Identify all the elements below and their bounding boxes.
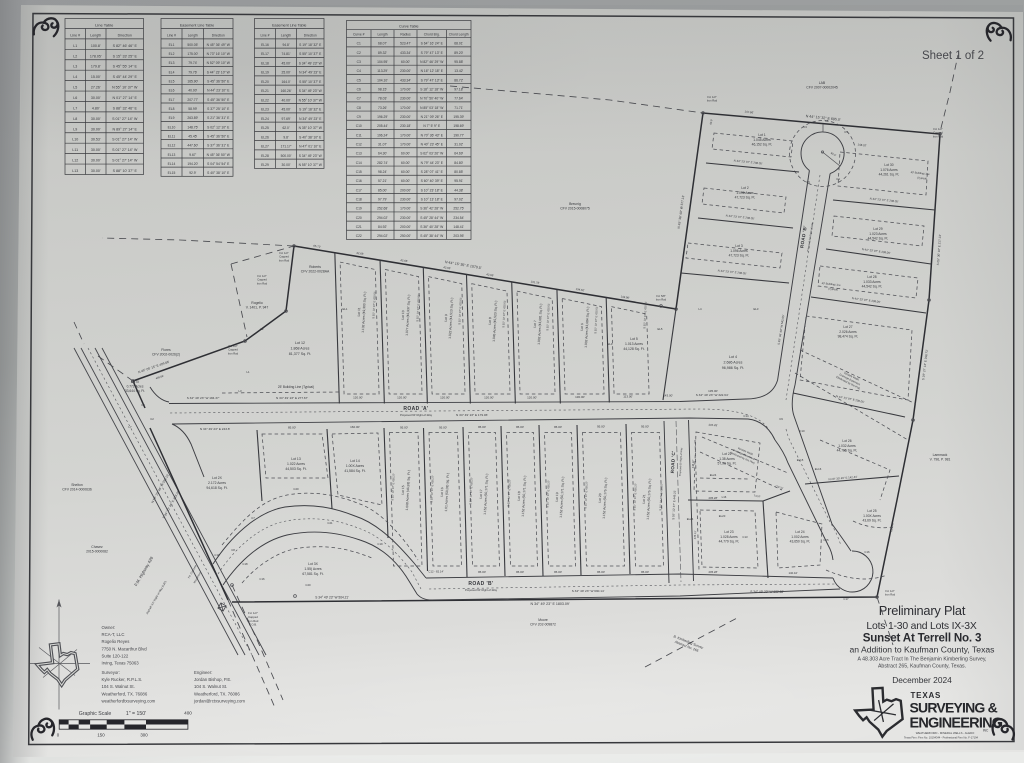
svg-text:13.42': 13.42' [454, 69, 463, 73]
svg-text:S 34° 49' 23" W: S 34° 49' 23" W [299, 61, 323, 65]
svg-text:S 79° 47' 13" E: S 79° 47' 13" E [421, 51, 444, 55]
svg-text:95.00': 95.00' [400, 426, 409, 430]
svg-text:N 21° 09' 26" E: N 21° 09' 26" E [421, 115, 444, 119]
svg-text:C6: C6 [806, 180, 810, 184]
svg-text:97.79': 97.79' [378, 198, 387, 202]
svg-text:EL4: EL4 [169, 70, 175, 74]
svg-text:EL2: EL2 [169, 52, 175, 56]
svg-text:L3: L3 [73, 65, 77, 69]
svg-text:113.29': 113.29' [377, 69, 388, 73]
svg-text:190.77': 190.77' [453, 133, 464, 137]
svg-text:30.00': 30.00' [91, 96, 101, 100]
svg-text:L5: L5 [826, 119, 829, 123]
svg-text:40.00': 40.00' [282, 98, 291, 102]
svg-text:EL12: EL12 [168, 144, 176, 148]
svg-text:S 40° 38' 10" E: S 40° 38' 10" E [207, 171, 230, 175]
svg-text:104.10': 104.10' [377, 78, 388, 82]
svg-text:S 45° 44' 29" E: S 45° 44' 29" E [113, 75, 138, 79]
svg-text:135.00': 135.00' [708, 389, 718, 393]
svg-text:170.00': 170.00' [400, 106, 411, 110]
svg-text:58.99': 58.99' [188, 107, 197, 111]
svg-text:L6: L6 [73, 96, 77, 100]
svg-text:Sheet 1 of 2: Sheet 1 of 2 [922, 50, 984, 62]
svg-text:27.26': 27.26' [91, 86, 101, 90]
svg-text:196.24': 196.24' [377, 133, 388, 137]
svg-text:EL15: EL15 [168, 171, 176, 175]
svg-text:84.80': 84.80' [454, 161, 463, 165]
svg-text:L1: L1 [246, 370, 250, 374]
svg-text:S 55° 10' 37" E: S 55° 10' 37" E [299, 52, 322, 56]
svg-text:30.00': 30.00' [91, 127, 101, 131]
svg-text:C15: C15 [823, 538, 829, 542]
svg-text:Fd. 1/2"Iron Rod: Fd. 1/2"Iron Rod [885, 589, 896, 597]
svg-text:Line Table: Line Table [95, 22, 114, 27]
svg-text:45.00': 45.00' [282, 108, 291, 112]
svg-text:C8: C8 [357, 106, 361, 110]
svg-text:S 01° 27' 14" W: S 01° 27' 14" W [112, 138, 138, 142]
svg-text:C12: C12 [356, 143, 362, 147]
svg-text:230.00': 230.00' [400, 115, 411, 119]
svg-text:198.69': 198.69' [453, 124, 464, 128]
svg-text:95.00': 95.00' [597, 570, 606, 574]
svg-text:S 36° 40' 28" W: S 36° 40' 28" W [420, 225, 444, 229]
svg-text:30.00': 30.00' [91, 169, 101, 173]
svg-text:L12: L12 [72, 159, 78, 163]
svg-text:N 16° 12' 18" E: N 16° 12' 18" E [421, 69, 444, 73]
svg-text:68.01': 68.01' [454, 42, 463, 46]
svg-text:Curve Table: Curve Table [399, 25, 419, 29]
svg-text:40.00': 40.00' [188, 89, 197, 93]
svg-text:L16: L16 [722, 495, 727, 499]
svg-text:C16: C16 [356, 179, 362, 183]
svg-text:30.00': 30.00' [91, 117, 101, 121]
svg-text:175.00': 175.00' [187, 52, 198, 56]
svg-text:9.8': 9.8' [283, 135, 289, 139]
svg-text:100.8': 100.8' [91, 44, 101, 48]
svg-text:Length: Length [281, 33, 291, 37]
svg-text:194.20': 194.20' [187, 162, 198, 166]
svg-text:148.75': 148.75' [187, 125, 198, 129]
svg-text:L2: L2 [260, 327, 264, 331]
svg-text:EL23: EL23 [261, 108, 269, 112]
svg-text:300: 300 [140, 733, 148, 738]
svg-text:an Addition to Kaufman County,: an Addition to Kaufman County, Texas [850, 645, 995, 655]
svg-text:95.00': 95.00' [478, 425, 487, 429]
svg-text:INC: INC [983, 729, 989, 733]
svg-text:EL24: EL24 [687, 517, 694, 521]
svg-text:L11: L11 [72, 148, 78, 152]
svg-text:143.00': 143.00' [663, 394, 673, 398]
svg-text:EL3: EL3 [169, 61, 175, 65]
svg-text:80.85': 80.85' [454, 170, 463, 174]
svg-text:C16: C16 [259, 577, 265, 581]
svg-text:95.91': 95.91' [454, 179, 463, 183]
svg-text:C18: C18 [356, 198, 362, 202]
svg-text:Lots 1-30 and Lots IX-3X: Lots 1-30 and Lots IX-3X [866, 621, 976, 632]
svg-text:N 45° 36' 49" W: N 45° 36' 49" W [207, 43, 231, 47]
svg-text:62.0': 62.0' [282, 126, 289, 130]
svg-text:C16: C16 [864, 550, 870, 554]
svg-text:Preliminary Plat: Preliminary Plat [879, 603, 966, 618]
svg-text:30.00': 30.00' [91, 159, 101, 163]
svg-text:31.02': 31.02' [454, 143, 463, 147]
svg-text:230.00': 230.00' [400, 198, 411, 202]
svg-text:S 01° 27' 14" W: S 01° 27' 14" W [112, 148, 138, 152]
svg-text:Chord Brg.: Chord Brg. [424, 33, 440, 37]
svg-text:L8: L8 [73, 117, 77, 121]
svg-text:Chord Length: Chord Length [449, 33, 469, 37]
svg-text:95.00': 95.00' [516, 425, 525, 429]
svg-text:97.18': 97.18' [454, 88, 463, 92]
svg-text:31.07': 31.07' [378, 143, 387, 147]
svg-text:L9: L9 [73, 127, 77, 131]
svg-text:December 2024: December 2024 [892, 675, 952, 685]
svg-text:97.69': 97.69' [282, 117, 291, 121]
svg-text:N 45° 36' 50" W: N 45° 36' 50" W [207, 153, 231, 157]
svg-text:S 88° 32' 46" E: S 88° 32' 46" E [113, 106, 138, 110]
svg-text:95.00': 95.00' [439, 425, 448, 429]
svg-text:95.00': 95.00' [641, 570, 650, 574]
svg-text:N 89° 27' 14" E: N 89° 27' 14" E [113, 127, 138, 131]
svg-text:89.32': 89.32' [378, 51, 387, 55]
svg-text:500.00': 500.00' [281, 154, 292, 158]
svg-text:EL15: EL15 [797, 458, 804, 462]
svg-text:170.00': 170.00' [400, 143, 411, 147]
svg-text:L4: L4 [698, 307, 702, 311]
svg-text:C13: C13 [356, 152, 362, 156]
svg-text:C4: C4 [836, 177, 840, 181]
svg-text:45.00': 45.00' [282, 61, 291, 65]
svg-text:N 70° 50' 40" W: N 70° 50' 40" W [420, 97, 444, 101]
svg-text:EL16: EL16 [815, 467, 822, 471]
svg-text:S 19° 18' 32" E: S 19° 18' 32" E [299, 108, 322, 112]
svg-text:EL19: EL19 [261, 71, 269, 75]
svg-text:171.17': 171.17' [281, 145, 292, 149]
svg-text:N 34° 49' 23" E: N 34° 49' 23" E [299, 71, 322, 75]
svg-text:S 15° 33' 25" E: S 15° 33' 25" E [113, 54, 138, 58]
svg-text:433.34': 433.34' [400, 78, 411, 82]
svg-text:N 01° 27' 14" E: N 01° 27' 14" E [113, 96, 138, 100]
svg-text:C1: C1 [357, 42, 361, 46]
svg-text:S 37° 36' 31" E: S 37° 36' 31" E [207, 144, 230, 148]
svg-text:C17: C17 [356, 188, 362, 192]
svg-text:294.02': 294.02' [377, 234, 388, 238]
svg-text:Fd. 1/2"CappedIron Rod: Fd. 1/2"CappedIron Rod [933, 127, 944, 138]
svg-text:Radius: Radius [400, 33, 411, 37]
svg-text:Fd. 1/2"Iron Rod: Fd. 1/2"Iron Rod [707, 95, 718, 103]
svg-text:C12 - 82.14': C12 - 82.14' [428, 570, 444, 574]
svg-text:EL14: EL14 [168, 162, 176, 166]
svg-text:203.95': 203.95' [453, 234, 464, 238]
svg-text:S 19° 18' 32" E: S 19° 18' 32" E [299, 43, 322, 47]
svg-text:Curve #: Curve # [353, 33, 365, 37]
svg-text:15.00': 15.00' [91, 75, 101, 79]
svg-text:447.60': 447.60' [187, 144, 198, 148]
svg-text:S 45° 36' 50" E: S 45° 36' 50" E [207, 98, 230, 102]
svg-text:EL5: EL5 [169, 80, 175, 84]
svg-text:S 45° 36' 50" E: S 45° 36' 50" E [207, 80, 230, 84]
svg-text:205.28': 205.28' [708, 423, 718, 427]
svg-text:S 37° 25' 10" E: S 37° 25' 10" E [207, 107, 230, 111]
svg-text:200.00': 200.00' [400, 225, 411, 229]
svg-text:64.30': 64.30' [378, 152, 387, 156]
svg-text:S 45° 38' 44" W: S 45° 38' 44" W [420, 234, 444, 238]
svg-text:195.39': 195.39' [453, 115, 464, 119]
svg-text:170.00': 170.00' [400, 207, 411, 211]
svg-text:89.20': 89.20' [454, 51, 463, 55]
svg-text:ROAD 'B': ROAD 'B' [468, 581, 493, 587]
svg-text:S 01° 27' 14" W: S 01° 27' 14" W [112, 117, 138, 121]
svg-text:95.88': 95.88' [454, 60, 463, 64]
svg-text:L4: L4 [73, 75, 77, 79]
svg-text:S 64° 16' 24" E: S 64° 16' 24" E [421, 42, 444, 46]
svg-text:ENGINEERING: ENGINEERING [910, 716, 1003, 732]
svg-text:95.00': 95.00' [554, 425, 563, 429]
svg-text:S 34° 49' 23" W: S 34° 49' 23" W [299, 89, 323, 93]
svg-text:L10: L10 [72, 138, 78, 142]
svg-text:Fd. 1/2"CappedIron Rod: Fd. 1/2"CappedIron Rod [228, 344, 239, 355]
svg-text:170.00': 170.00' [400, 88, 411, 92]
svg-text:EL24: EL24 [710, 473, 717, 477]
svg-text:C20: C20 [356, 216, 362, 220]
svg-text:200.00': 200.00' [400, 188, 411, 192]
svg-text:EL24: EL24 [261, 117, 269, 121]
svg-text:N 34° 49' 23" E 243.8': N 34° 49' 23" E 243.8' [200, 427, 231, 431]
svg-text:Texas Firm: Firm No. 10194344: Texas Firm: Firm No. 10194344 - Professi… [904, 736, 979, 740]
svg-text:Length: Length [188, 33, 198, 37]
svg-text:EL20: EL20 [719, 514, 726, 518]
svg-text:S 40° 38' 10" E: S 40° 38' 10" E [299, 135, 322, 139]
svg-text:S 34° 49' 23" W 690.14': S 34° 49' 23" W 690.14' [572, 589, 605, 593]
svg-text:252.68': 252.68' [377, 207, 388, 211]
svg-text:86.72': 86.72' [454, 78, 463, 82]
svg-text:Proposed 60' Right-of-Way: Proposed 60' Right-of-Way [465, 588, 498, 592]
svg-text:N 55° 10' 37" W: N 55° 10' 37" W [299, 98, 323, 102]
svg-text:N 55° 10' 37" W: N 55° 10' 37" W [112, 86, 138, 90]
svg-text:234.54': 234.54' [453, 216, 464, 220]
svg-text:EL28: EL28 [261, 154, 269, 158]
svg-text:C4: C4 [141, 403, 145, 407]
svg-text:S 10° 13' 18" E: S 10° 13' 18" E [421, 198, 444, 202]
svg-text:160.00': 160.00' [350, 425, 360, 429]
svg-text:S 62° 03' 26" W: S 62° 03' 26" W [420, 152, 444, 156]
svg-text:C18: C18 [242, 562, 248, 566]
svg-text:EL5: EL5 [658, 327, 663, 331]
svg-text:170.00': 170.00' [400, 133, 411, 137]
svg-text:30.00': 30.00' [282, 163, 291, 167]
svg-text:179.8': 179.8' [91, 65, 101, 69]
svg-text:250.00': 250.00' [400, 234, 411, 238]
svg-text:C10: C10 [214, 553, 220, 557]
svg-text:500.05': 500.05' [187, 43, 198, 47]
svg-text:EL9: EL9 [169, 116, 175, 120]
svg-text:EL3: EL3 [754, 307, 759, 311]
svg-text:S 01° 27' 14" W: S 01° 27' 14" W [112, 159, 138, 163]
svg-text:165.90': 165.90' [187, 80, 198, 84]
svg-text:282.74': 282.74' [377, 161, 388, 165]
svg-text:248.07': 248.07' [691, 459, 695, 468]
svg-text:230.00': 230.00' [400, 69, 411, 73]
svg-text:S 45° 55' 14" E: S 45° 55' 14" E [113, 65, 138, 69]
svg-text:263.89': 263.89' [187, 116, 198, 120]
svg-text:C5: C5 [357, 78, 361, 82]
svg-text:S 34° 49' 23" W 184.37': S 34° 49' 23" W 184.37' [187, 396, 220, 400]
svg-text:EL21: EL21 [261, 89, 269, 93]
svg-text:45.45': 45.45' [188, 134, 197, 138]
svg-text:C10: C10 [799, 429, 805, 433]
svg-text:C9: C9 [779, 417, 783, 421]
svg-text:78.03': 78.03' [378, 97, 387, 101]
svg-text:S 88° 10' 37" E: S 88° 10' 37" E [113, 169, 138, 173]
svg-text:79.74': 79.74' [188, 61, 197, 65]
svg-text:150: 150 [97, 733, 105, 738]
svg-text:Fd. 5/8"Iron Rod: Fd. 5/8"Iron Rod [656, 294, 667, 302]
svg-text:85.00': 85.00' [288, 425, 297, 429]
svg-text:N 35° 10' 37" W: N 35° 10' 37" W [299, 126, 323, 130]
svg-text:EL18: EL18 [261, 61, 269, 65]
svg-text:C7: C7 [251, 516, 255, 520]
svg-text:Sunset At Terrell No. 3: Sunset At Terrell No. 3 [863, 632, 982, 645]
svg-text:433.34': 433.34' [400, 51, 411, 55]
svg-text:C4: C4 [357, 69, 361, 73]
svg-text:120.00': 120.00' [397, 396, 407, 400]
svg-text:C3: C3 [803, 125, 807, 129]
svg-text:57.21': 57.21' [378, 179, 387, 183]
svg-text:79.76': 79.76' [188, 70, 197, 74]
svg-text:C22: C22 [356, 234, 362, 238]
svg-text:N 85° 03' 18" W: N 85° 03' 18" W [420, 106, 444, 110]
svg-text:205.44': 205.44' [377, 124, 388, 128]
svg-text:C14: C14 [356, 161, 362, 165]
svg-text:120.00': 120.00' [353, 396, 363, 400]
svg-text:148.41': 148.41' [453, 225, 464, 229]
svg-text:178.05': 178.05' [90, 54, 102, 58]
svg-text:C21: C21 [327, 521, 333, 525]
svg-text:25' Building Line (Typical): 25' Building Line (Typical) [278, 385, 314, 389]
svg-text:95.00': 95.00' [641, 425, 650, 429]
svg-text:EL20: EL20 [261, 80, 269, 84]
svg-text:C7: C7 [357, 97, 361, 101]
svg-text:EL10: EL10 [168, 125, 176, 129]
svg-text:C11: C11 [356, 133, 362, 137]
svg-text:S 45° 36' 50" E: S 45° 36' 50" E [207, 134, 230, 138]
svg-text:A 48.303 Acre Tract In The Ben: A 48.303 Acre Tract In The Benjamin Kimb… [858, 657, 987, 663]
svg-text:Fd. 1/2"CappedIron Rod: Fd. 1/2"CappedIron Rod [257, 274, 268, 285]
svg-text:Easement Line Table: Easement Line Table [180, 23, 214, 27]
svg-text:95.00': 95.00' [478, 570, 487, 574]
svg-text:EL11: EL11 [168, 134, 176, 138]
svg-text:1" = 150': 1" = 150' [126, 711, 146, 717]
svg-text:S 82° 46' 46" E: S 82° 46' 46" E [113, 44, 138, 48]
svg-text:95.00': 95.00' [516, 570, 525, 574]
svg-text:196.29': 196.29' [377, 115, 388, 119]
svg-text:S 60° 40' 39" E: S 60° 40' 39" E [421, 179, 444, 183]
svg-text:Line #: Line # [70, 33, 80, 37]
svg-text:68.07': 68.07' [378, 42, 387, 46]
svg-text:EL4: EL4 [608, 342, 613, 346]
svg-text:S 02° 12' 10" E: S 02° 12' 10" E [207, 125, 230, 129]
svg-text:SURVEYING &: SURVEYING & [910, 700, 998, 716]
svg-text:120.00': 120.00' [527, 396, 537, 400]
svg-text:S 36° 42' 28" W: S 36° 42' 28" W [420, 207, 444, 211]
svg-text:C19: C19 [377, 542, 383, 546]
svg-text:97.02': 97.02' [454, 198, 463, 202]
svg-text:Abstract 265, Kaufman County,: Abstract 265, Kaufman County, Texas. [878, 664, 966, 670]
svg-text:230.00': 230.00' [400, 97, 411, 101]
svg-text:C14: C14 [743, 414, 749, 418]
svg-text:73.26': 73.26' [378, 106, 387, 110]
svg-text:N 82° 46' 29" W: N 82° 46' 29" W [420, 60, 444, 64]
svg-text:60.00': 60.00' [401, 161, 410, 165]
svg-text:N 34° 49' 23" E: N 34° 49' 23" E [299, 117, 322, 121]
svg-text:98.24': 98.24' [378, 170, 387, 174]
svg-text:77.64': 77.64' [454, 97, 463, 101]
svg-text:N 73° 16' 10" W: N 73° 16' 10" W [207, 52, 231, 56]
svg-text:74.81': 74.81' [282, 52, 291, 56]
svg-text:400: 400 [184, 711, 192, 716]
svg-text:S 04° 54' 54" E: S 04° 54' 54" E [207, 162, 230, 166]
svg-text:230.00': 230.00' [400, 216, 411, 220]
svg-text:EL1: EL1 [169, 43, 175, 47]
svg-text:95.00': 95.00' [554, 570, 563, 574]
svg-text:278.13': 278.13' [693, 530, 697, 539]
svg-text:C13: C13 [742, 535, 748, 539]
svg-text:Direction: Direction [212, 33, 225, 37]
svg-text:C21: C21 [356, 225, 362, 229]
svg-text:205.28': 205.28' [708, 570, 718, 574]
svg-text:ROAD 'A': ROAD 'A' [403, 406, 428, 412]
svg-text:C5: C5 [844, 130, 848, 134]
svg-text:EL26: EL26 [261, 135, 269, 139]
svg-text:N 34° 49' 23" E 277.67': N 34° 49' 23" E 277.67' [276, 396, 308, 400]
svg-text:113.00': 113.00' [623, 395, 633, 399]
svg-text:84.92': 84.92' [378, 225, 387, 229]
svg-text:Line #: Line # [261, 33, 270, 37]
svg-text:Proposed 60' Right-of-Way: Proposed 60' Right-of-Way [400, 413, 433, 417]
svg-text:EL6: EL6 [169, 89, 175, 93]
svg-text:130.00': 130.00' [575, 395, 585, 399]
svg-text:Length: Length [90, 33, 101, 37]
svg-text:L1: L1 [73, 44, 77, 48]
svg-text:205.28': 205.28' [708, 496, 718, 500]
svg-text:Graphic Scale: Graphic Scale [79, 711, 112, 717]
svg-text:N 79° 44' 23" E: N 79° 44' 23" E [421, 161, 444, 165]
svg-text:30.00': 30.00' [91, 148, 101, 152]
svg-text:S 34° 49' 23" W 564.21': S 34° 49' 23" W 564.21' [315, 596, 349, 600]
svg-text:L7: L7 [73, 106, 77, 110]
svg-text:N 40° 23' 45" E: N 40° 23' 45" E [421, 143, 444, 147]
svg-text:S 45° 28' 44" W: S 45° 28' 44" W [420, 216, 444, 220]
svg-text:44.38': 44.38' [454, 188, 463, 192]
svg-text:Direction: Direction [304, 33, 317, 37]
svg-text:C6: C6 [357, 88, 361, 92]
svg-text:207.77': 207.77' [187, 98, 198, 102]
svg-text:S 44° 23' 10" W: S 44° 23' 10" W [207, 70, 231, 74]
svg-text:60.00': 60.00' [401, 152, 410, 156]
svg-text:120.00': 120.00' [440, 396, 450, 400]
svg-text:94.8': 94.8' [282, 43, 289, 47]
svg-text:S 28° 07' 41" E: S 28° 07' 41" E [421, 170, 444, 174]
svg-text:294.02': 294.02' [377, 216, 388, 220]
svg-text:64.69': 64.69' [454, 152, 463, 156]
svg-text:C19: C19 [356, 207, 362, 211]
svg-text:C10: C10 [356, 124, 362, 128]
svg-text:140.42': 140.42' [788, 571, 798, 575]
svg-text:Fd. 1/2"CappedIron Rod: Fd. 1/2"CappedIron Rod [279, 251, 290, 262]
svg-text:N 7° 5' 9" E: N 7° 5' 9" E [423, 124, 441, 128]
svg-text:S 34° 49' 23" W 322.64': S 34° 49' 23" W 322.64' [696, 393, 729, 397]
svg-text:95.00': 95.00' [597, 425, 606, 429]
